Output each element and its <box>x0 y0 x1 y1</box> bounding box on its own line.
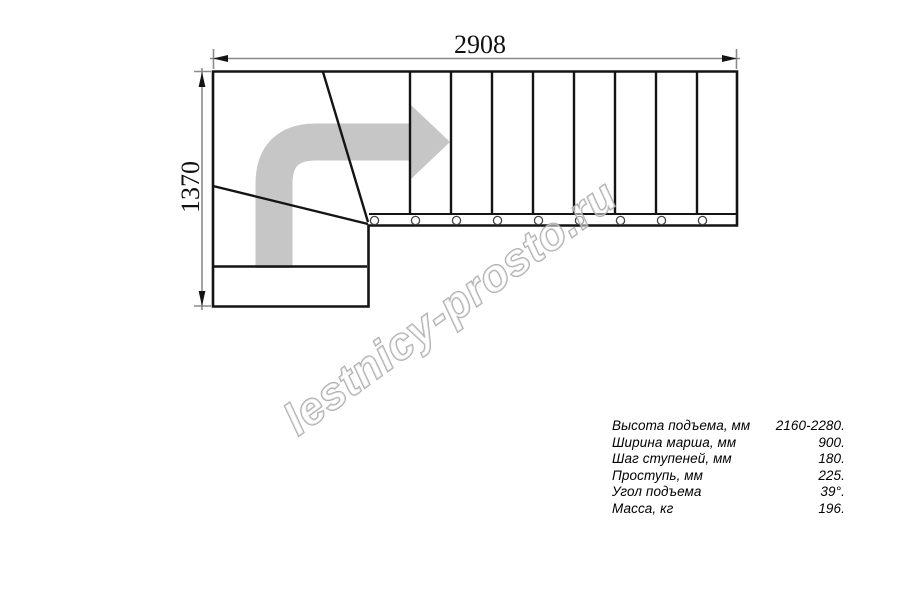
spec-row: Высота подъема, мм 2160-2280. <box>612 418 845 435</box>
baluster-circle <box>411 216 419 224</box>
spec-value: 196. <box>818 501 845 518</box>
spec-value: 225. <box>818 468 845 485</box>
spec-row: Угол подъема 39°. <box>612 484 845 501</box>
dim-arrow-icon <box>199 291 206 306</box>
spec-label: Угол подъема <box>612 484 702 501</box>
spec-label: Высота подъема, мм <box>612 418 750 435</box>
dim-height-label: 1370 <box>176 161 205 213</box>
specs-table: Высота подъема, мм 2160-2280. Ширина мар… <box>612 418 845 517</box>
spec-label: Шаг ступеней, мм <box>612 451 732 468</box>
spec-value: 900. <box>818 435 845 452</box>
spec-row: Масса, кг 196. <box>612 501 845 518</box>
arrow-head-icon <box>411 105 450 179</box>
spec-value: 180. <box>818 451 845 468</box>
spec-label: Масса, кг <box>612 501 673 518</box>
dim-height: 1370 <box>176 68 211 310</box>
baluster-circle <box>698 216 706 224</box>
spec-value: 2160-2280. <box>776 418 845 435</box>
baluster-circle <box>493 216 501 224</box>
baluster-circle <box>657 216 665 224</box>
spec-row: Проступь, мм 225. <box>612 468 845 485</box>
spec-row: Шаг ступеней, мм 180. <box>612 451 845 468</box>
direction-arrow <box>274 105 450 268</box>
spec-label: Ширина марша, мм <box>612 435 736 452</box>
baluster-circle <box>370 216 378 224</box>
spec-label: Проступь, мм <box>612 468 703 485</box>
dim-arrow-icon <box>722 55 737 62</box>
dim-arrow-icon <box>213 55 228 62</box>
baluster-circle <box>616 216 624 224</box>
stair-drawing-page: 2908 1370 lestnicy-prosto.ru Высота подъ… <box>0 0 900 600</box>
dim-arrow-icon <box>199 72 206 87</box>
spec-value: 39°. <box>820 484 845 501</box>
spec-row: Ширина марша, мм 900. <box>612 435 845 452</box>
dim-width-label: 2908 <box>454 30 506 59</box>
baluster-circle <box>452 216 460 224</box>
dim-width: 2908 <box>210 30 740 69</box>
